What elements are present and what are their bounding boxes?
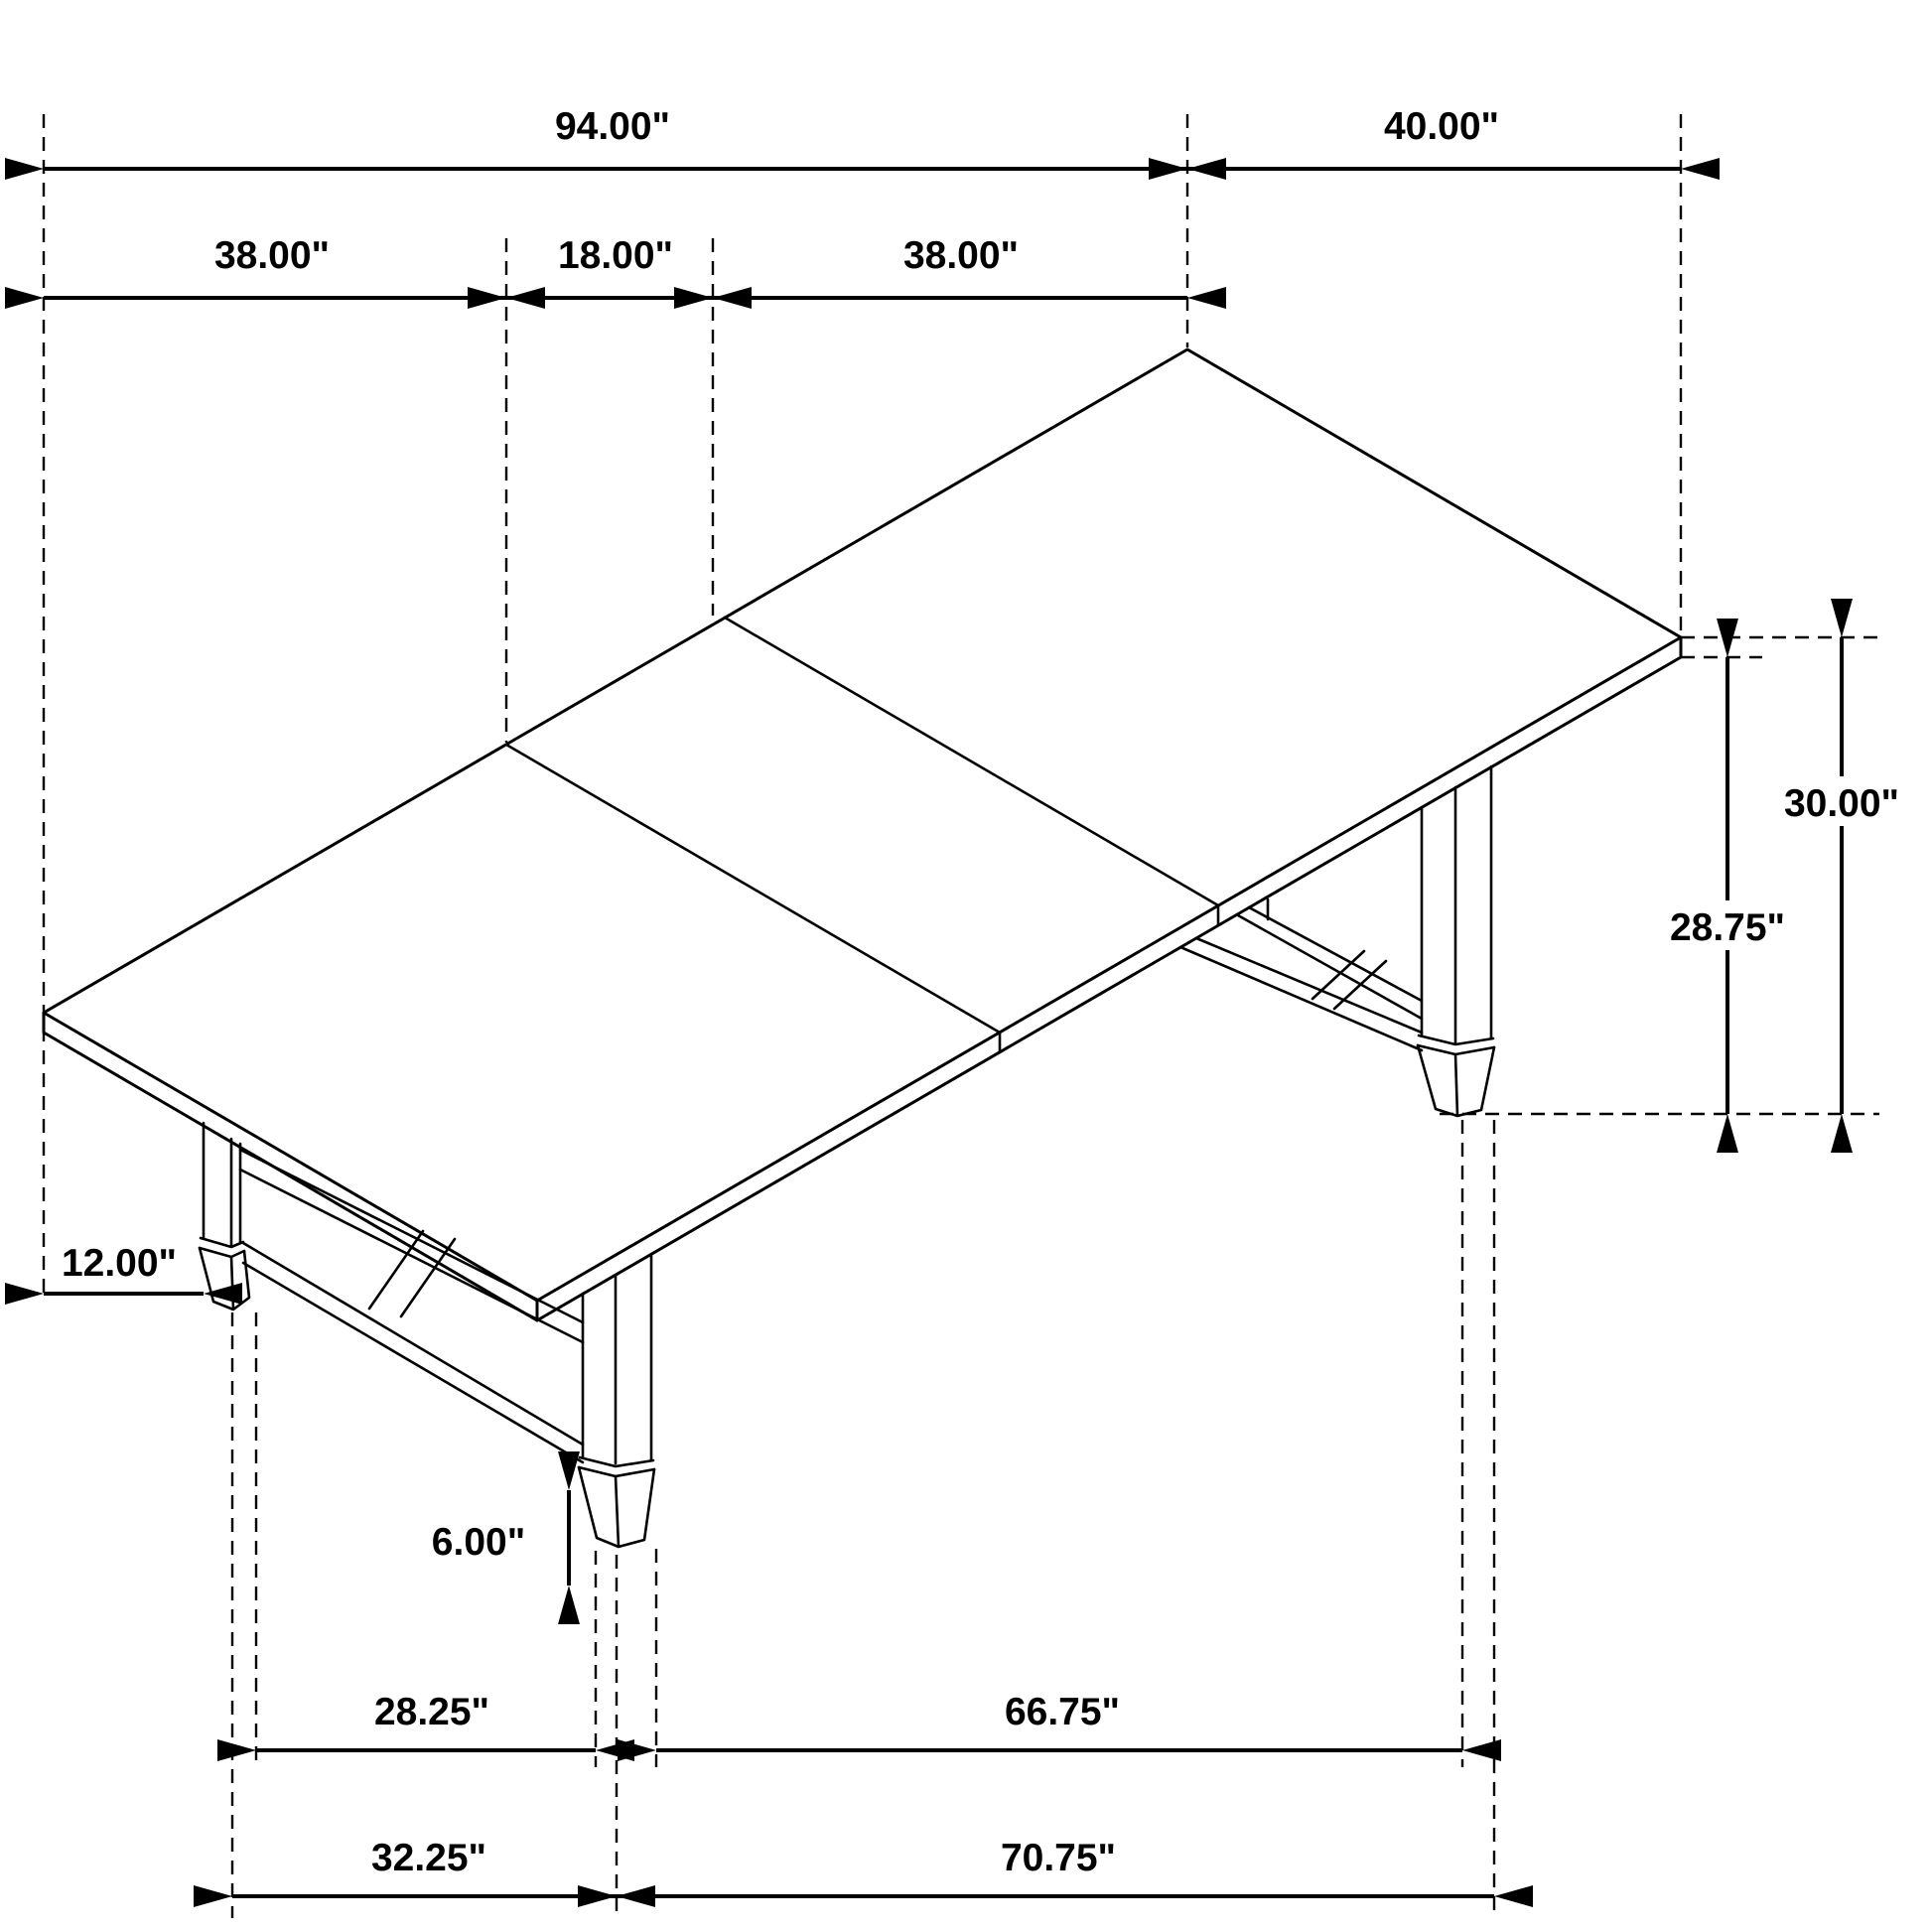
label-overall-length: 94.00" (555, 105, 670, 148)
label-panel-b: 38.00" (903, 234, 1019, 277)
label-span-inner-right: 66.75" (1005, 1691, 1120, 1733)
right-trestle-lower-beam (1180, 938, 1422, 1050)
extension-lines (44, 114, 1879, 1918)
right-trestle-upper-beam (1238, 907, 1422, 1019)
leaf-seam-right (725, 618, 1218, 925)
front-center-leg (579, 1254, 654, 1547)
label-span-outer-right: 70.75" (1001, 1837, 1116, 1879)
label-leaf: 18.00" (558, 234, 673, 277)
leaf-seam-left (506, 745, 1000, 1052)
right-front-leg-post (1422, 766, 1491, 1042)
front-center-leg-post (583, 1254, 651, 1463)
right-trestle-brace (1312, 951, 1386, 1009)
label-panel-a: 38.00" (214, 234, 330, 277)
label-apron-height: 28.75" (1670, 906, 1785, 949)
label-span-outer-left: 32.25" (371, 1837, 486, 1879)
label-span-inner-left: 28.25" (374, 1691, 489, 1733)
right-trestle-beams (1180, 899, 1422, 1050)
label-foot-height: 6.00" (432, 1521, 525, 1564)
left-back-leg-foot (200, 1248, 249, 1310)
right-front-leg-foot (1418, 1045, 1494, 1116)
right-front-leg (1418, 766, 1494, 1116)
tabletop-front-thickness (537, 637, 1681, 1320)
table-drawing (44, 349, 1681, 1547)
tabletop-top-face (44, 349, 1681, 1301)
front-center-leg-foot (579, 1467, 654, 1547)
dimension-labels: 94.00" 40.00" 38.00" 18.00" 38.00" 30.00… (62, 105, 1899, 1879)
left-back-leg-post (204, 1123, 240, 1246)
dimension-lines (44, 169, 1842, 1896)
dimension-diagram: 94.00" 40.00" 38.00" 18.00" 38.00" 30.00… (0, 0, 1932, 1932)
left-back-leg-collar (200, 1238, 244, 1257)
left-trestle-beams (240, 1150, 583, 1462)
label-overhang: 12.00" (62, 1242, 177, 1285)
label-height: 30.00" (1784, 782, 1899, 825)
drawing-canvas: 94.00" 40.00" 38.00" 18.00" 38.00" 30.00… (0, 0, 1932, 1932)
label-width: 40.00" (1384, 105, 1499, 148)
left-trestle-lower-beam (243, 1243, 583, 1462)
